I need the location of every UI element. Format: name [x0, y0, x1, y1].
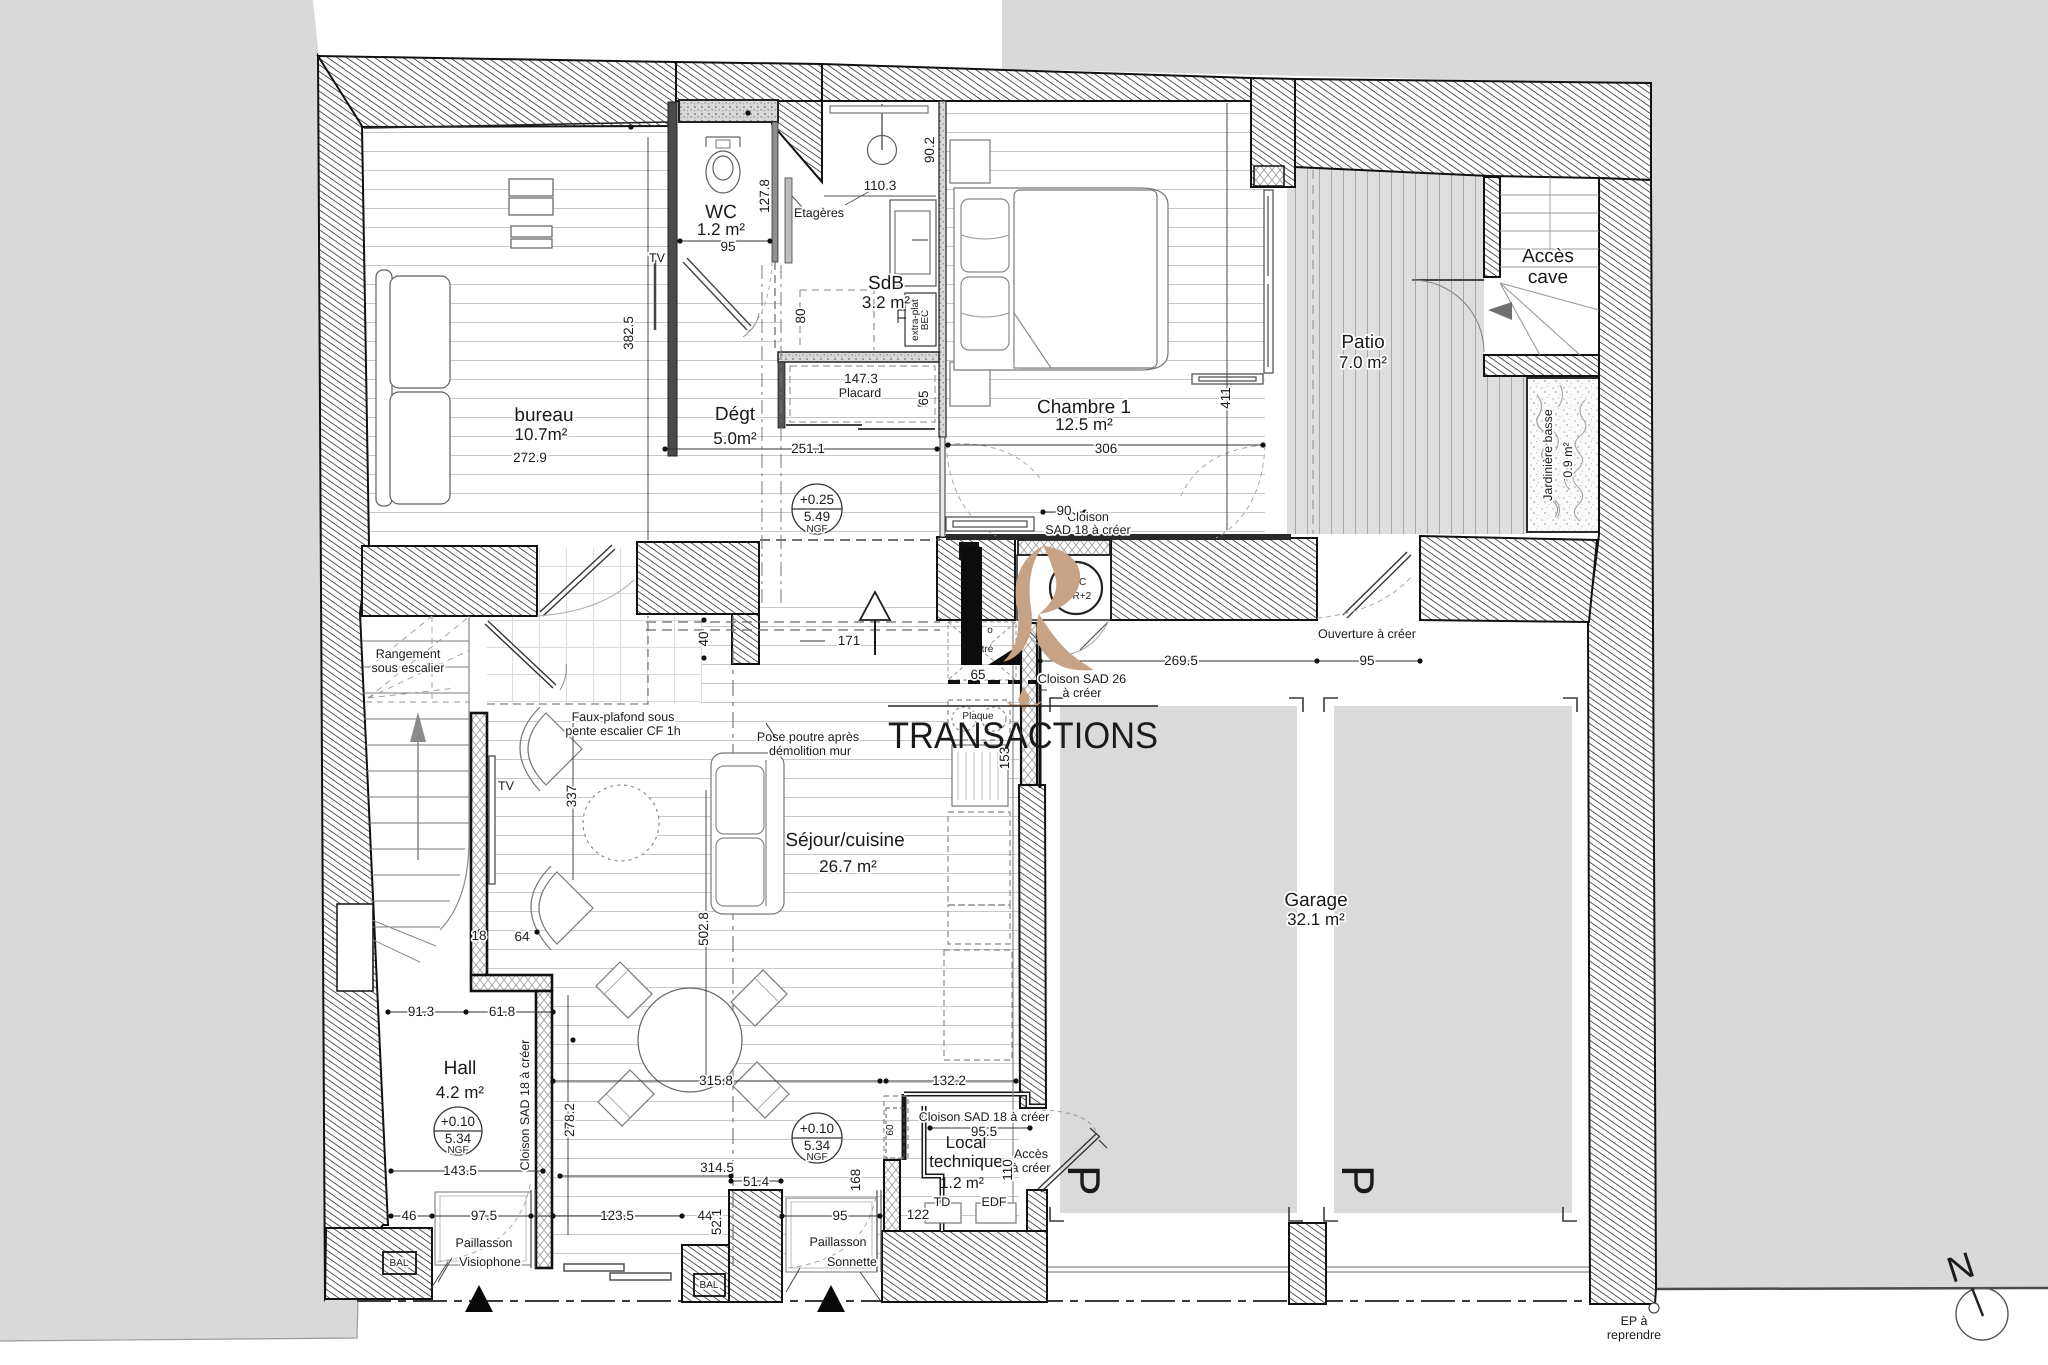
svg-text:272.9: 272.9 [513, 450, 547, 465]
svg-text:171: 171 [838, 633, 861, 648]
svg-text:Rangement: Rangement [376, 647, 441, 661]
svg-text:1.2 m²: 1.2 m² [940, 1175, 984, 1192]
svg-text:P: P [1332, 1165, 1384, 1196]
svg-text:BAL: BAL [390, 1258, 409, 1269]
svg-text:10.7m²: 10.7m² [515, 425, 568, 444]
svg-text:Dégt: Dégt [715, 404, 756, 425]
svg-text:90: 90 [1056, 503, 1071, 518]
svg-text:TD: TD [934, 1195, 951, 1209]
svg-text:Placard: Placard [839, 386, 881, 400]
svg-text:cave: cave [1528, 267, 1568, 288]
svg-text:à créer: à créer [1012, 1161, 1051, 1175]
svg-text:TRANSACTIONS: TRANSACTIONS [888, 715, 1158, 756]
svg-text:à créer: à créer [1063, 686, 1102, 700]
svg-text:337: 337 [564, 785, 579, 808]
svg-text:pente escalier CF 1h: pente escalier CF 1h [565, 724, 680, 738]
svg-text:18: 18 [471, 928, 486, 943]
svg-text:306: 306 [1095, 441, 1118, 456]
svg-text:Visiophone: Visiophone [459, 1255, 521, 1269]
svg-text:Cloison SAD 26: Cloison SAD 26 [1038, 672, 1126, 686]
svg-text:64: 64 [514, 929, 530, 944]
svg-text:Jardinière basse: Jardinière basse [1541, 409, 1555, 501]
svg-text:97.5: 97.5 [471, 1208, 497, 1223]
svg-text:+0.10: +0.10 [800, 1121, 834, 1136]
svg-text:bureau: bureau [514, 405, 573, 426]
svg-text:sous escalier: sous escalier [372, 661, 445, 675]
svg-text:61.8: 61.8 [489, 1004, 515, 1019]
svg-text:127.8: 127.8 [757, 179, 772, 213]
svg-text:SAD 18 à créer: SAD 18 à créer [1045, 523, 1130, 537]
svg-text:reprendre: reprendre [1607, 1328, 1661, 1342]
svg-text:315.8: 315.8 [699, 1073, 733, 1088]
svg-text:démolition mur: démolition mur [769, 744, 851, 758]
svg-text:314.5: 314.5 [700, 1160, 734, 1175]
svg-text:extra-plat: extra-plat [910, 299, 921, 341]
svg-text:51.4: 51.4 [743, 1174, 770, 1189]
svg-text:+0.25: +0.25 [800, 492, 834, 507]
svg-text:65: 65 [916, 390, 931, 405]
svg-text:Hall: Hall [444, 1058, 477, 1079]
svg-text:269.5: 269.5 [1164, 653, 1198, 668]
svg-text:Etagères: Etagères [794, 206, 844, 220]
svg-text:P: P [1058, 1165, 1110, 1196]
svg-text:Cloison: Cloison [1067, 510, 1109, 524]
svg-text:4.2 m²: 4.2 m² [436, 1083, 485, 1102]
svg-text:5.34: 5.34 [445, 1131, 472, 1146]
svg-text:1.2 m²: 1.2 m² [697, 220, 746, 239]
svg-text:122: 122 [907, 1207, 930, 1222]
svg-text:411: 411 [1218, 387, 1233, 409]
svg-text:80: 80 [793, 308, 808, 323]
svg-text:168: 168 [848, 1169, 863, 1192]
svg-text:12.5 m²: 12.5 m² [1055, 415, 1113, 434]
svg-text:95: 95 [1359, 653, 1374, 668]
svg-text:Séjour/cuisine: Séjour/cuisine [785, 830, 904, 851]
svg-text:110.3: 110.3 [864, 178, 897, 193]
svg-text:BEC: BEC [920, 310, 931, 331]
svg-text:52.1: 52.1 [709, 1209, 724, 1235]
svg-text:132.2: 132.2 [932, 1073, 966, 1088]
svg-text:382.5: 382.5 [621, 316, 636, 350]
svg-text:TV: TV [649, 251, 666, 265]
svg-text:251.1: 251.1 [791, 441, 825, 456]
svg-text:278.2: 278.2 [562, 1103, 577, 1137]
svg-text:Accès: Accès [1014, 1147, 1048, 1161]
svg-text:+0.10: +0.10 [441, 1114, 475, 1129]
svg-text:60: 60 [885, 1124, 896, 1136]
svg-text:BAL: BAL [700, 1280, 719, 1291]
svg-text:90.2: 90.2 [922, 137, 937, 163]
svg-text:32.1 m²: 32.1 m² [1287, 910, 1345, 929]
svg-text:technique: technique [929, 1152, 1003, 1171]
svg-text:147.3: 147.3 [844, 371, 878, 386]
svg-text:Cloison SAD 18 à créer: Cloison SAD 18 à créer [919, 1110, 1050, 1124]
svg-text:NGF: NGF [806, 524, 827, 535]
svg-text:502.8: 502.8 [696, 912, 711, 946]
svg-text:91.3: 91.3 [408, 1004, 434, 1019]
svg-text:143.5: 143.5 [443, 1163, 477, 1178]
svg-text:TV: TV [498, 779, 515, 793]
svg-text:5.0m²: 5.0m² [713, 429, 757, 448]
svg-text:EDF: EDF [982, 1195, 1007, 1209]
svg-text:Paillasson: Paillasson [456, 1236, 513, 1250]
svg-text:3.2 m²: 3.2 m² [862, 293, 911, 312]
svg-text:Patio: Patio [1341, 332, 1384, 353]
svg-text:Ouverture à créer: Ouverture à créer [1318, 627, 1416, 641]
svg-text:46: 46 [401, 1208, 416, 1223]
svg-text:26.7 m²: 26.7 m² [819, 857, 877, 876]
svg-text:o: o [987, 625, 993, 636]
svg-text:7.0 m²: 7.0 m² [1339, 353, 1388, 372]
svg-text:95.5: 95.5 [971, 1124, 997, 1139]
svg-text:Accès: Accès [1522, 246, 1574, 267]
svg-text:SdB: SdB [868, 273, 904, 294]
svg-text:5.34: 5.34 [804, 1138, 831, 1153]
svg-text:65: 65 [970, 667, 985, 682]
svg-text:0.9 m²: 0.9 m² [1561, 442, 1575, 477]
svg-text:Paillasson: Paillasson [810, 1235, 867, 1249]
svg-text:NGF: NGF [447, 1145, 468, 1156]
svg-text:123.5: 123.5 [600, 1208, 634, 1223]
svg-text:Cloison SAD 18 à créer: Cloison SAD 18 à créer [518, 1040, 532, 1171]
svg-text:110: 110 [1000, 1159, 1015, 1181]
svg-text:5.49: 5.49 [804, 509, 830, 524]
svg-text:Faux-plafond sous: Faux-plafond sous [572, 710, 675, 724]
svg-text:95: 95 [832, 1208, 847, 1223]
svg-text:EP à: EP à [1621, 1314, 1648, 1328]
svg-text:Garage: Garage [1284, 890, 1347, 911]
svg-text:NGF: NGF [806, 1152, 827, 1163]
svg-text:40: 40 [696, 631, 711, 646]
svg-text:95: 95 [720, 239, 735, 254]
svg-text:Sonnette: Sonnette [827, 1255, 877, 1269]
